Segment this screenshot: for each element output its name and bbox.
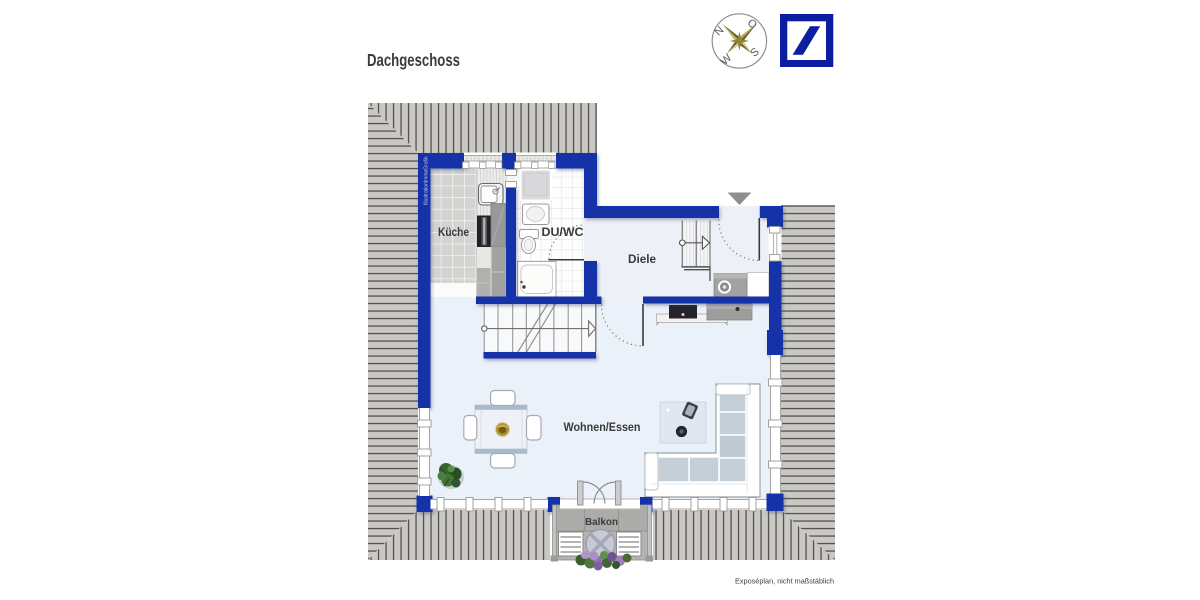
svg-text:Balkon: Balkon (585, 516, 618, 528)
svg-text:DU/WC: DU/WC (542, 227, 584, 239)
svg-text:Dachgeschoss: Dachgeschoss (367, 50, 460, 70)
svg-text:Küche: Küche (438, 227, 469, 239)
svg-text:Wohnen/Essen: Wohnen/Essen (564, 422, 641, 434)
svg-text:Exposéplan, nicht maßstäblich: Exposéplan, nicht maßstäblich (735, 577, 834, 586)
svg-text:Diele: Diele (628, 254, 656, 266)
svg-text:IllustrationImmoGrafik: IllustrationImmoGrafik (424, 156, 430, 205)
